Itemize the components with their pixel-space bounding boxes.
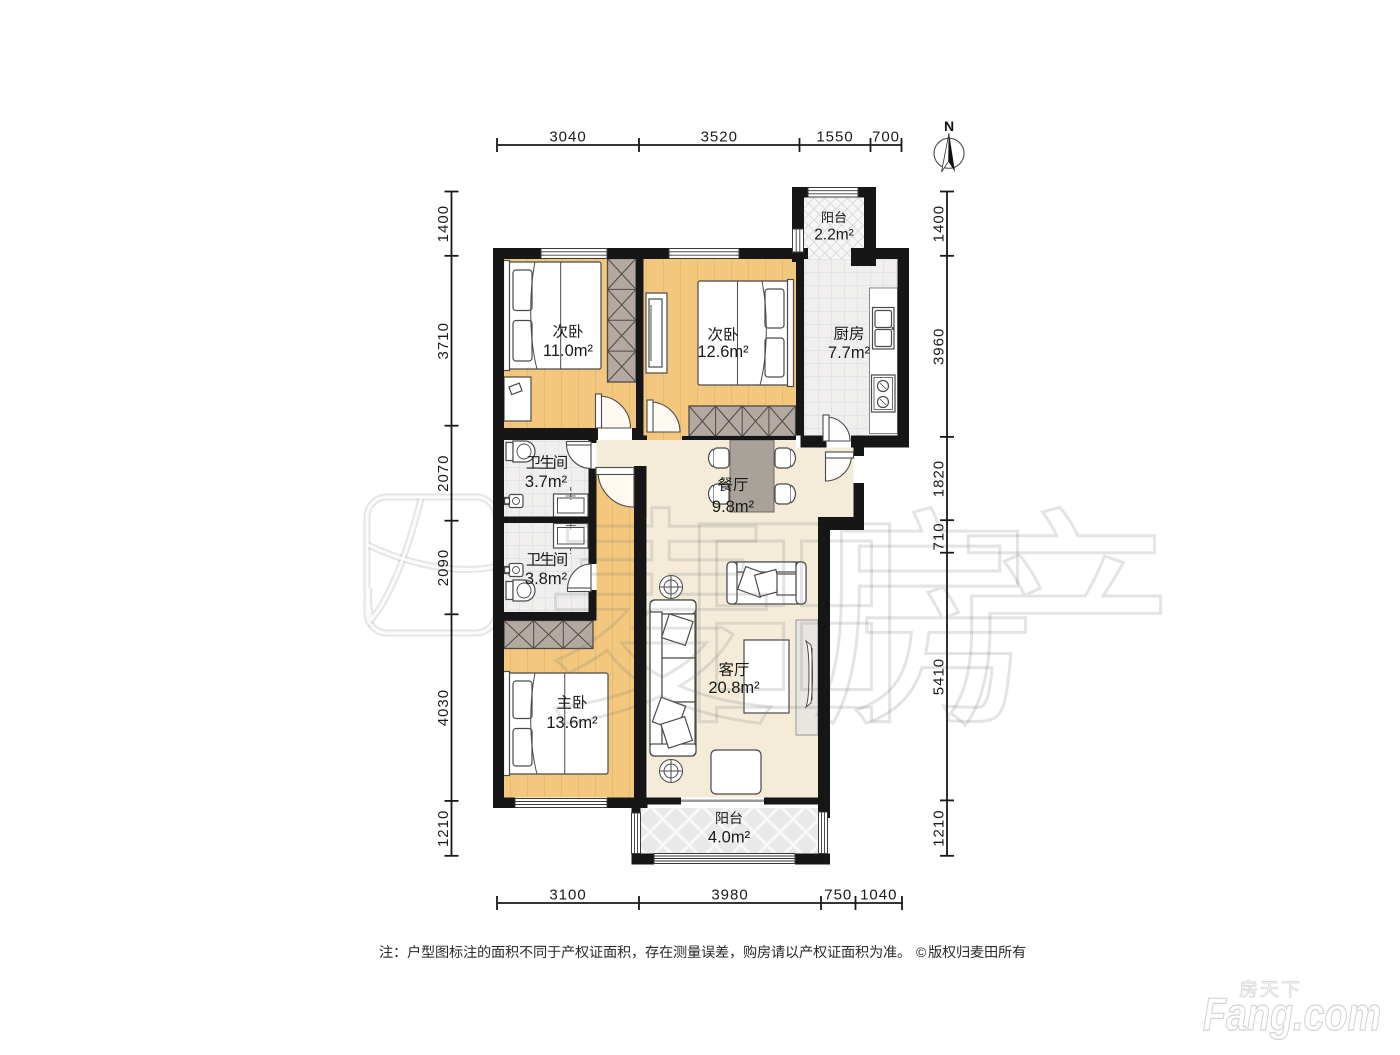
svg-text:5410: 5410 bbox=[931, 658, 948, 695]
svg-text:1040: 1040 bbox=[860, 887, 897, 904]
svg-text:1400: 1400 bbox=[931, 205, 948, 242]
svg-text:4.0m²: 4.0m² bbox=[708, 829, 751, 847]
svg-text:1210: 1210 bbox=[931, 809, 948, 846]
svg-text:1550: 1550 bbox=[816, 129, 853, 146]
svg-text:1400: 1400 bbox=[435, 205, 452, 242]
svg-text:750: 750 bbox=[824, 887, 852, 904]
svg-text:12.6m²: 12.6m² bbox=[697, 343, 749, 361]
svg-text:4030: 4030 bbox=[435, 689, 452, 726]
svg-text:3520: 3520 bbox=[701, 129, 738, 146]
svg-text:N: N bbox=[944, 118, 954, 134]
svg-text:3960: 3960 bbox=[931, 328, 948, 365]
svg-text:3040: 3040 bbox=[549, 129, 586, 146]
svg-text:20.8m²: 20.8m² bbox=[708, 679, 760, 697]
svg-text:710: 710 bbox=[931, 522, 948, 550]
svg-text:2070: 2070 bbox=[435, 455, 452, 492]
svg-text:Fang.com: Fang.com bbox=[1203, 988, 1381, 1040]
svg-text:9.8m²: 9.8m² bbox=[712, 498, 755, 516]
svg-text:2090: 2090 bbox=[435, 549, 452, 586]
svg-text:1210: 1210 bbox=[435, 810, 452, 847]
svg-text:11.0m²: 11.0m² bbox=[543, 342, 594, 360]
svg-text:3.8m²: 3.8m² bbox=[525, 570, 568, 588]
svg-text:700: 700 bbox=[872, 129, 900, 146]
svg-text:3.7m²: 3.7m² bbox=[525, 473, 568, 491]
svg-text:7.7m²: 7.7m² bbox=[828, 344, 871, 362]
svg-text:1820: 1820 bbox=[931, 460, 948, 497]
svg-text:3710: 3710 bbox=[435, 322, 452, 359]
svg-text:13.6m²: 13.6m² bbox=[546, 714, 598, 732]
svg-text:2.2m²: 2.2m² bbox=[814, 227, 854, 244]
svg-text:©: © bbox=[916, 944, 927, 960]
svg-text:3100: 3100 bbox=[549, 887, 586, 904]
svg-text:3980: 3980 bbox=[711, 887, 748, 904]
